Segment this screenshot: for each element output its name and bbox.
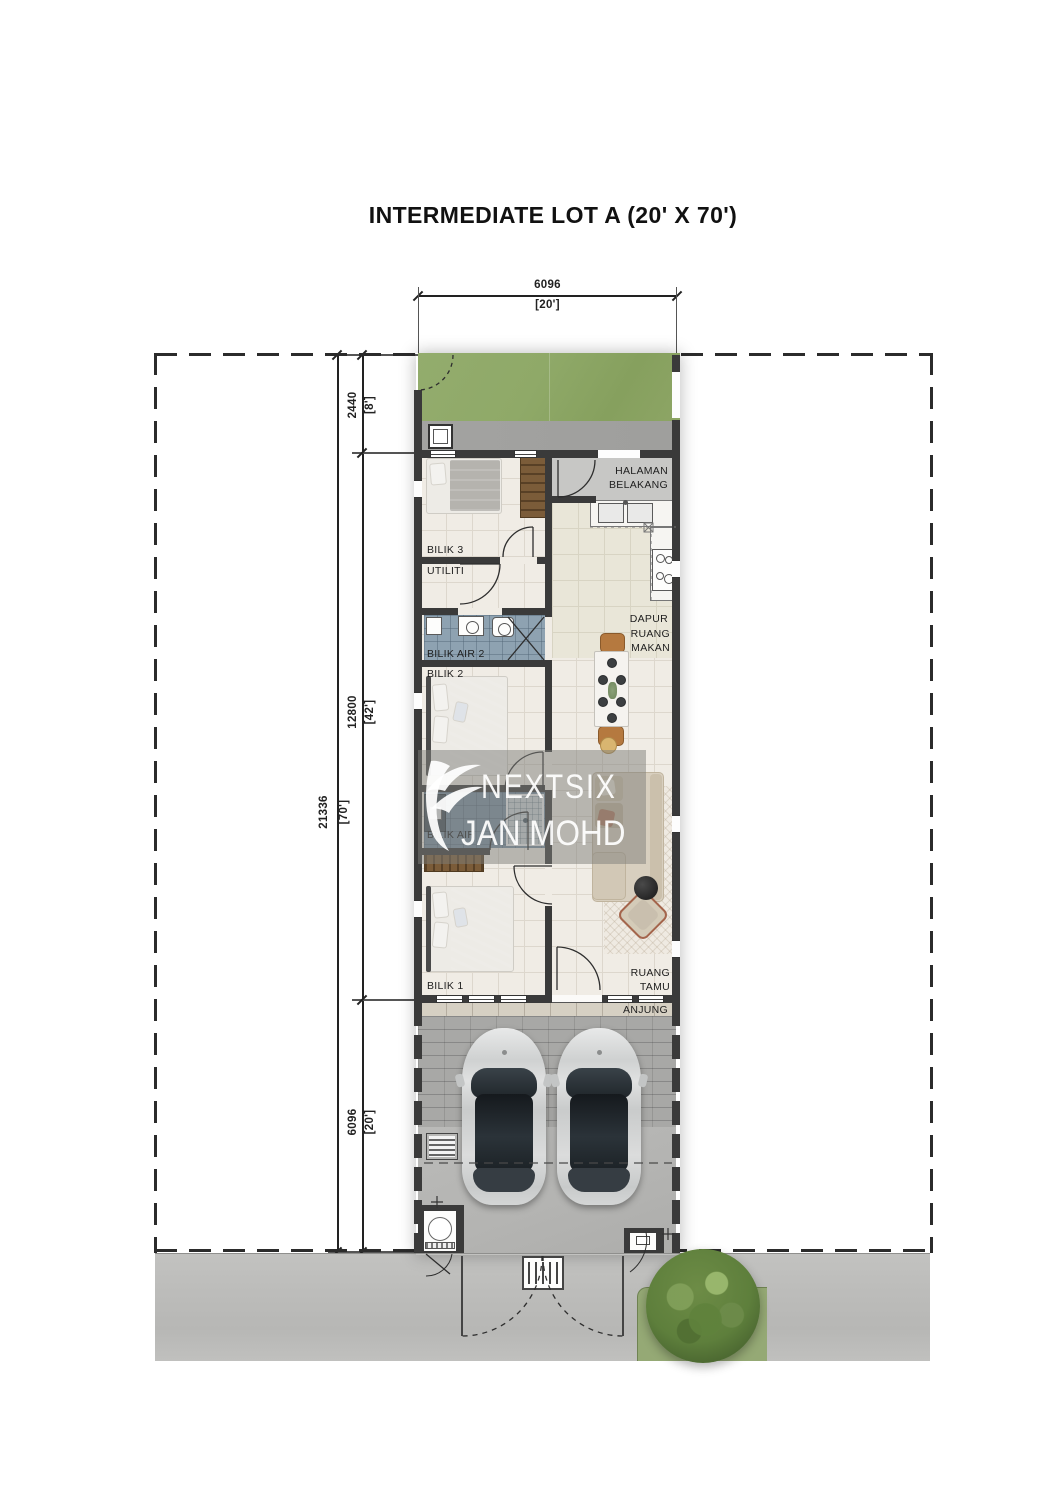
blanket-navy [451, 888, 511, 970]
car-left [462, 1028, 546, 1205]
rear-side-gate-gap [672, 372, 680, 418]
pillow [432, 683, 450, 711]
meter-unit [636, 1236, 650, 1245]
window-front [436, 995, 463, 1003]
headboard [426, 886, 431, 972]
car-rear-window [473, 1168, 535, 1192]
car-roof [475, 1094, 533, 1172]
car-emblem [502, 1050, 507, 1055]
car-emblem [597, 1050, 602, 1055]
boundary-dash-top-left [155, 353, 415, 356]
boundary-dash-left [154, 353, 157, 1253]
floor-plan-page: INTERMEDIATE LOT A (20' X 70') 6096 [20'… [0, 0, 1060, 1500]
plate [598, 697, 608, 707]
room-label-bilik3: BILIK 3 [427, 543, 464, 557]
fence-right [672, 1002, 680, 1253]
kitchen-faucet [623, 500, 628, 505]
boundary-dash-top-right [681, 353, 932, 356]
wall-patio-kitchen [552, 496, 596, 503]
stove-burner [656, 554, 665, 563]
dim-house-ft: [42'] [364, 700, 376, 725]
grass-seam [549, 353, 550, 421]
dim-house-mm: 12800 [347, 695, 359, 728]
dim-rear-yard-mm: 2440 [347, 392, 359, 419]
door-gap-bilik1 [545, 864, 552, 906]
basin [466, 621, 479, 634]
car-roof [570, 1094, 628, 1172]
gate-leaf-left [461, 1256, 463, 1336]
dim-extension-line [418, 287, 419, 353]
bed-double-bilik1 [426, 886, 514, 972]
blanket-gray [450, 460, 500, 511]
coffee-table [634, 876, 658, 900]
room-label-halaman-belakang: HALAMAN BELAKANG [592, 464, 668, 492]
room-label-bilik1: BILIK 1 [427, 979, 464, 993]
laundry-fixture [426, 617, 442, 635]
drain-grate [426, 1133, 458, 1160]
armchair-cushion [626, 898, 660, 932]
main-gate-bars [528, 1262, 558, 1284]
window-front [638, 995, 664, 1003]
dim-depth-total-ft: [70'] [338, 800, 350, 825]
room-label-ruang-tamu: RUANG TAMU [608, 966, 670, 994]
room-label-dapur: DAPUR [598, 612, 668, 626]
water-tank-inner [433, 429, 448, 444]
room-label-utiliti: UTILITI [427, 564, 464, 578]
room-label-anjung: ANJUNG [598, 1003, 668, 1017]
water-tank-slab [428, 424, 453, 449]
dim-extension-line [676, 287, 677, 353]
bed-single-bilik3 [426, 458, 502, 514]
pillow [432, 891, 450, 918]
fence-left [414, 1002, 422, 1253]
wall-center [545, 452, 552, 1002]
logo-swoosh-mid [431, 787, 483, 813]
dim-rear-yard-ft: [8'] [364, 396, 376, 414]
meter-box-walls [624, 1228, 664, 1253]
window-back-bilik3 [430, 450, 456, 458]
wall-right [672, 420, 680, 1002]
kitchen-sink-right [627, 503, 653, 523]
window-front [500, 995, 527, 1003]
watermark-agent-text: JAN MOHD [461, 814, 626, 854]
plate [598, 675, 608, 685]
dim-front-yard-mm: 6096 [347, 1109, 359, 1136]
window-side [414, 480, 422, 498]
pillow [432, 921, 450, 948]
dim-front-yard-ft: [20'] [364, 1110, 376, 1135]
room-label-bilik2: BILIK 2 [427, 667, 464, 681]
door-gap-bilik3 [500, 557, 537, 564]
dining-table [594, 651, 629, 727]
gate-leaf-right [622, 1256, 624, 1336]
window-side [672, 940, 680, 958]
car-rear-window [568, 1168, 630, 1192]
toilet [492, 617, 514, 637]
car-right [557, 1028, 641, 1205]
table-centerpiece [608, 682, 617, 699]
kitchen-sink-left [598, 503, 624, 523]
front-door-threshold [552, 995, 602, 1003]
dim-depth-total-mm: 21336 [318, 795, 330, 828]
dim-width-line [418, 295, 677, 297]
window-front [468, 995, 495, 1003]
wall-right-top [672, 355, 680, 372]
dim-width-ft: [20'] [418, 299, 677, 311]
door-gap-bath2 [545, 617, 552, 660]
plate [607, 658, 617, 668]
window-back-bilik3b [514, 450, 537, 458]
plate [616, 697, 626, 707]
window-side [414, 900, 422, 918]
outdoor-toilet-basin [428, 1217, 452, 1241]
window-front [607, 995, 633, 1003]
back-patio-opening [598, 450, 640, 458]
back-concrete-path [418, 421, 680, 452]
watermark-brand-text: NEXTSIX [481, 768, 617, 807]
window-side [672, 815, 680, 833]
outdoor-toilet-walls [418, 1205, 464, 1253]
dim-width-mm: 6096 [418, 279, 677, 291]
room-label-bilik-air-2: BILIK AIR 2 [427, 647, 485, 661]
toilet-bowl [498, 623, 511, 636]
main-gate-panel [522, 1256, 564, 1290]
pillow [429, 462, 447, 485]
boundary-dash-right [930, 353, 933, 1253]
vanity-sink [458, 616, 484, 636]
tree [646, 1249, 760, 1363]
wardrobe-bilik3 [520, 454, 548, 518]
window-side [414, 692, 422, 710]
window-side [672, 560, 680, 578]
pillow [432, 715, 449, 743]
page-title: INTERMEDIATE LOT A (20' X 70') [230, 202, 876, 229]
outdoor-toilet-vent [425, 1242, 455, 1249]
plate [616, 675, 626, 685]
door-gap-utiliti [458, 608, 502, 615]
room-label-ruang-makan: RUANG MAKAN [608, 627, 670, 655]
stove-burner [656, 572, 664, 580]
plate [607, 713, 617, 723]
